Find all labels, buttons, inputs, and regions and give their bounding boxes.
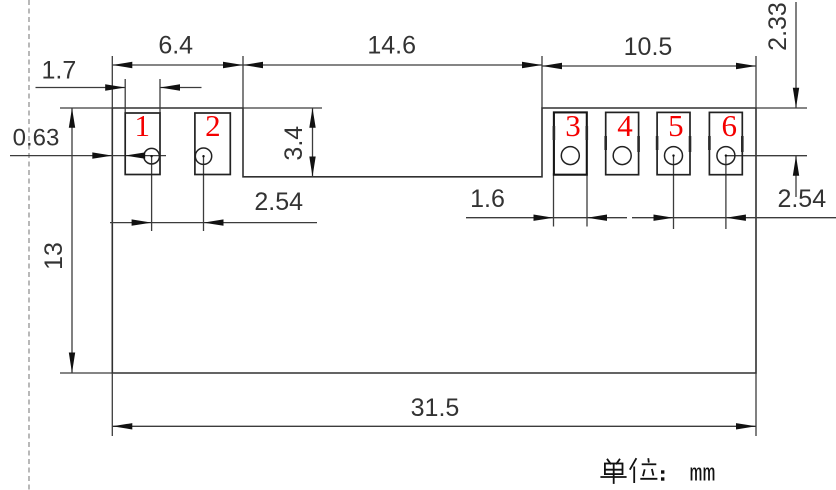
svg-text:5: 5 [668, 108, 684, 143]
svg-text:2.54: 2.54 [777, 185, 826, 213]
svg-text:2: 2 [205, 108, 221, 143]
svg-text:6: 6 [722, 108, 738, 143]
svg-text:1.7: 1.7 [42, 56, 77, 84]
svg-text:2.54: 2.54 [254, 188, 303, 216]
svg-text:3.4: 3.4 [280, 126, 308, 161]
svg-text:1: 1 [134, 108, 150, 143]
svg-text:1.6: 1.6 [470, 185, 505, 213]
svg-text:10.5: 10.5 [624, 33, 673, 61]
svg-text:31.5: 31.5 [411, 394, 460, 422]
svg-text:4: 4 [617, 108, 633, 143]
svg-text:mm: mm [690, 462, 716, 489]
svg-text:14.6: 14.6 [367, 32, 416, 60]
svg-text:6.4: 6.4 [158, 32, 193, 60]
svg-text:2.33: 2.33 [764, 2, 792, 51]
svg-text:0.63: 0.63 [13, 125, 60, 152]
svg-text:3: 3 [565, 108, 581, 143]
svg-text:13: 13 [40, 242, 68, 270]
